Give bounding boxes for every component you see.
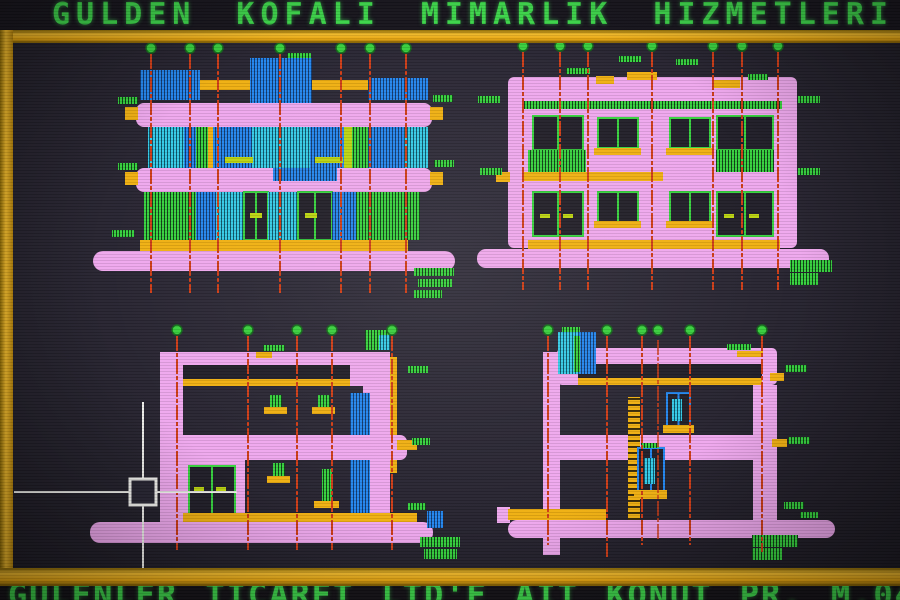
title-bar-bottom: GÜLENLER TİCARET LTD'E AİT KONUT PR. M.0… bbox=[0, 586, 900, 600]
side-elevation-bottom-left bbox=[90, 325, 460, 559]
border-bottom bbox=[0, 568, 900, 586]
cad-screen: GÜLDEN KOFALI MİMARLIK HİZMETLERİ bbox=[0, 0, 900, 600]
rear-elevation-top-right bbox=[477, 41, 832, 290]
title-word-2: KOFALI bbox=[236, 0, 380, 30]
border-left bbox=[0, 30, 13, 586]
drawing-canvas[interactable] bbox=[0, 0, 900, 600]
title-word-1: GÜLDEN bbox=[52, 0, 196, 30]
title-word-3: MİMARLIK bbox=[421, 0, 614, 30]
side-elevation-bottom-right bbox=[497, 325, 835, 560]
front-elevation-top-left bbox=[93, 43, 455, 298]
title-bar-top: GÜLDEN KOFALI MİMARLIK HİZMETLERİ bbox=[0, 0, 900, 30]
bottom-title-text: GÜLENLER TİCARET LTD'E AİT KONUT PR. M.0… bbox=[0, 586, 900, 600]
elevation-drawing bbox=[0, 0, 900, 600]
title-word-4: HİZMETLERİ bbox=[653, 0, 894, 30]
